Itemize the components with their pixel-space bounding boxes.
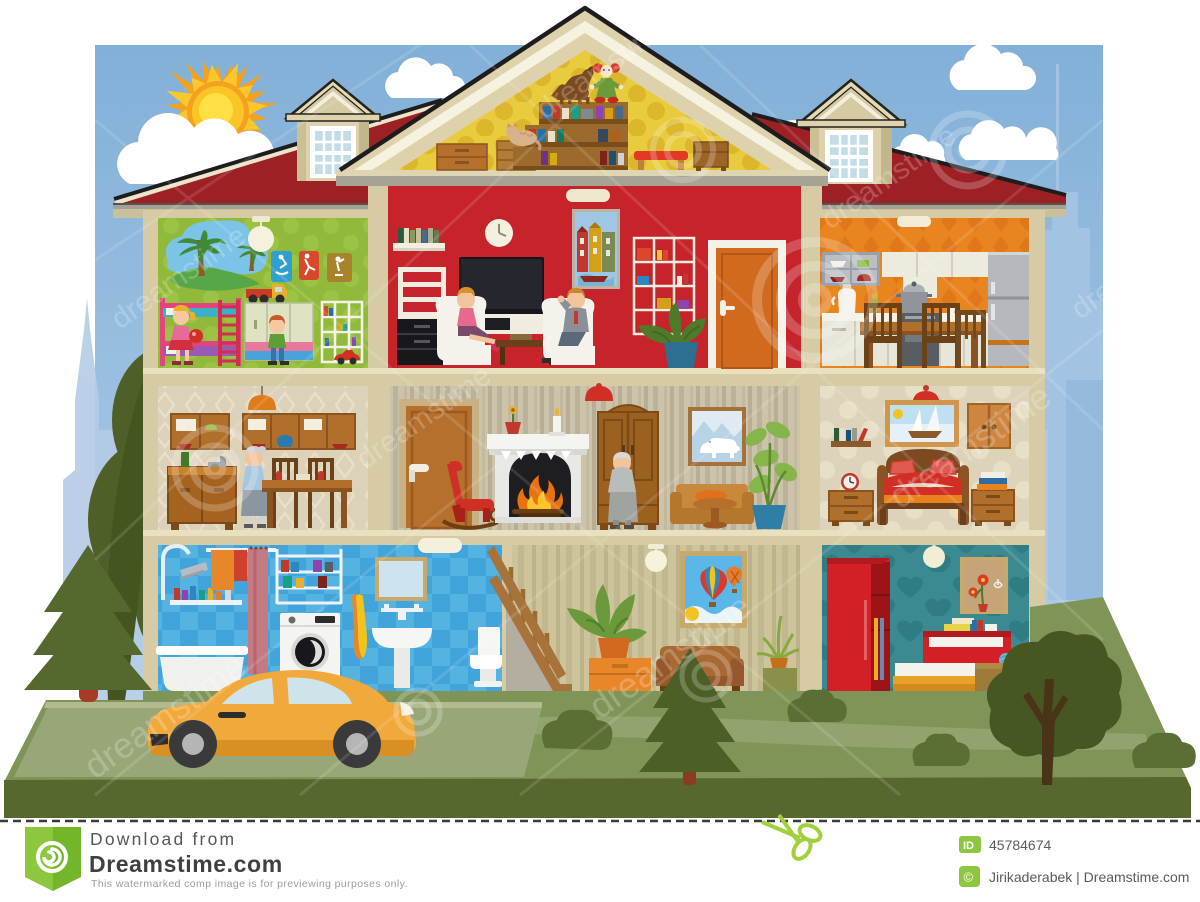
svg-text:This watermarked comp image is: This watermarked comp image is for previ…	[91, 878, 408, 890]
svg-text:Dreamstime.com: Dreamstime.com	[89, 851, 283, 877]
svg-text:Jirikaderabek | Dreamstime.com: Jirikaderabek | Dreamstime.com	[989, 869, 1189, 885]
svg-text:Download from: Download from	[90, 829, 236, 849]
svg-text:45784674: 45784674	[989, 837, 1052, 853]
svg-text:©: ©	[964, 870, 974, 885]
svg-text:ID: ID	[963, 840, 974, 852]
